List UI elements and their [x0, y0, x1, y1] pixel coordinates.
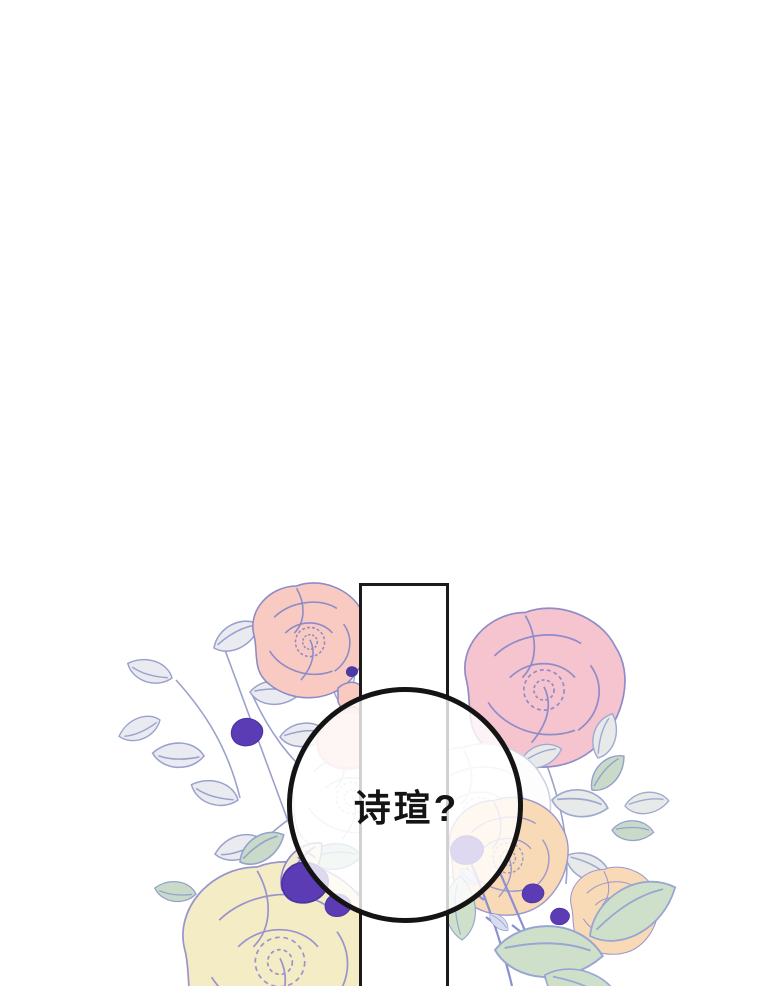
webtoon-panel: 诗瑄?: [0, 0, 760, 986]
speech-text: 诗瑄?: [351, 778, 460, 832]
speech-bubble: 诗瑄?: [287, 687, 523, 923]
